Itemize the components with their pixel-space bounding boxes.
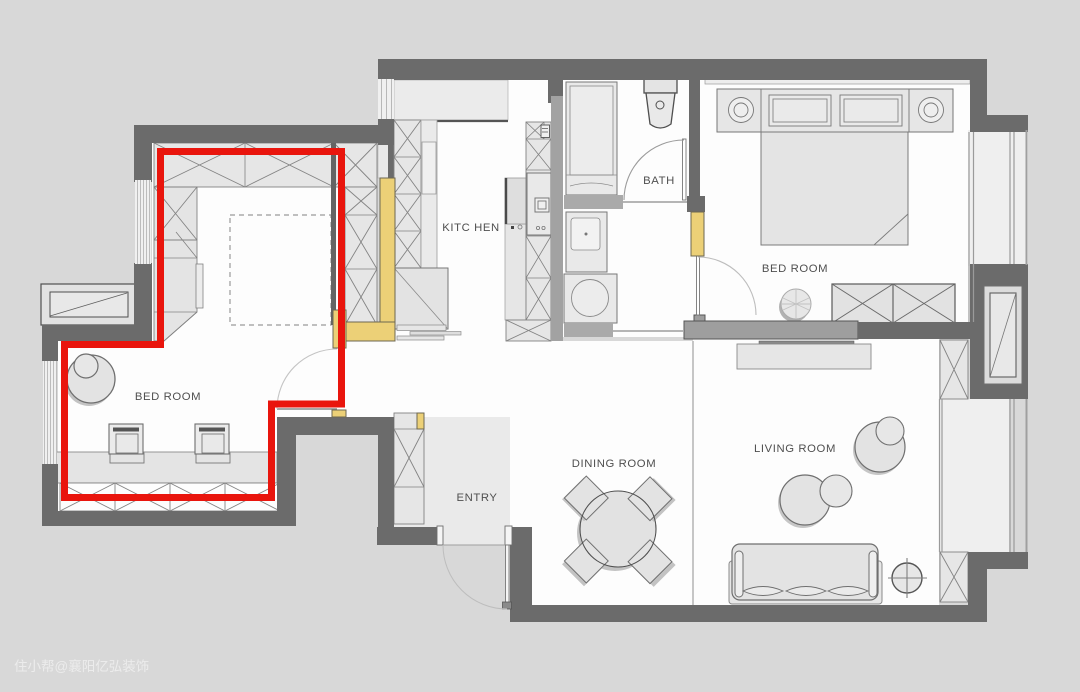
svg-text:BED ROOM: BED ROOM [762,263,828,275]
svg-text:DINING ROOM: DINING ROOM [572,458,656,470]
svg-text:ENTRY: ENTRY [456,492,497,504]
svg-text:KITC HEN: KITC HEN [442,222,500,234]
svg-text:BED ROOM: BED ROOM [135,391,201,403]
svg-text:BATH: BATH [643,175,675,187]
svg-text:LIVING ROOM: LIVING ROOM [754,443,836,455]
svg-text:住小帮@襄阳亿弘装饰: 住小帮@襄阳亿弘装饰 [14,659,149,674]
